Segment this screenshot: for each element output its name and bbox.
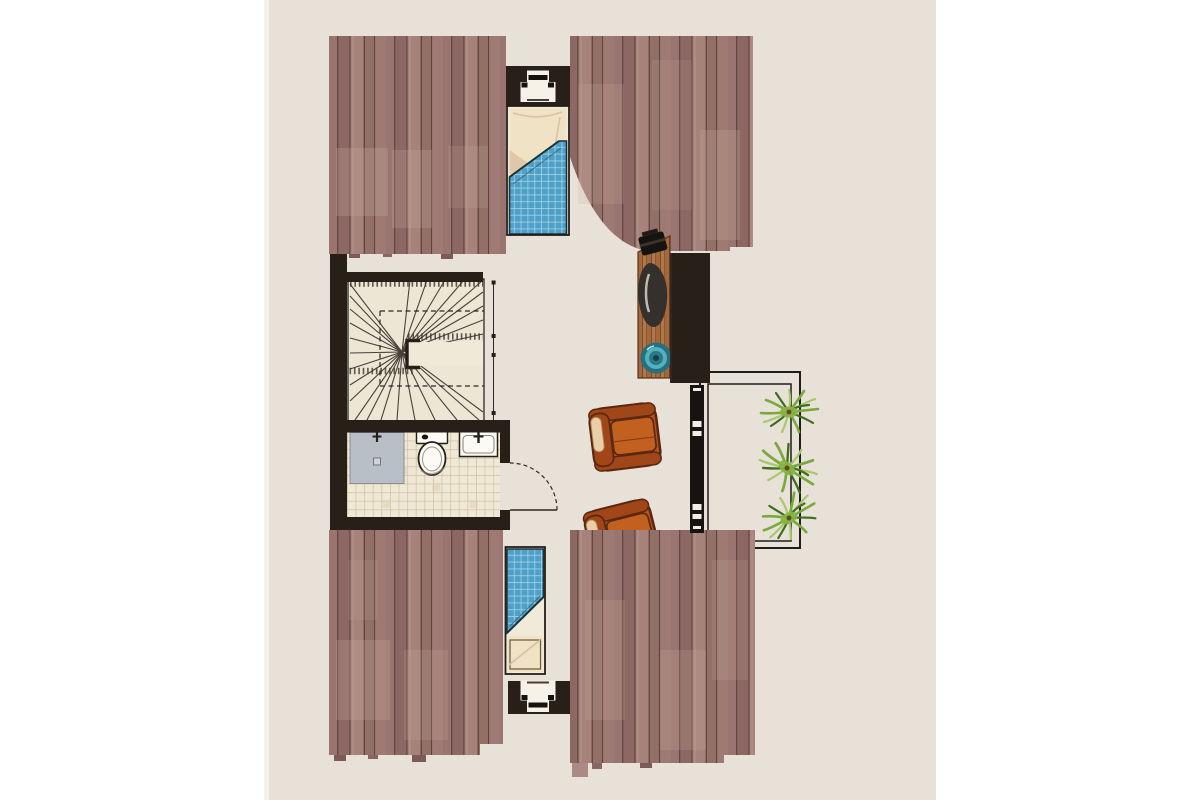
- stair-void: [408, 342, 484, 366]
- winder-staircase: [348, 279, 496, 421]
- panel-edge-strip: [264, 0, 269, 800]
- wall-stairwell: [347, 272, 483, 282]
- bed-south: [506, 547, 546, 674]
- toilet: [417, 431, 448, 476]
- bed-north: [507, 106, 569, 235]
- washbasin: [460, 431, 498, 457]
- armchair-1: [588, 402, 662, 472]
- french-window: [690, 385, 704, 533]
- floor-plan-svg: [0, 0, 1200, 800]
- wardrobe: [670, 253, 710, 383]
- floor-plan-page: [0, 0, 1200, 800]
- wall-west: [330, 254, 347, 530]
- round-pouf: [641, 343, 672, 374]
- shower-drain: [374, 458, 381, 465]
